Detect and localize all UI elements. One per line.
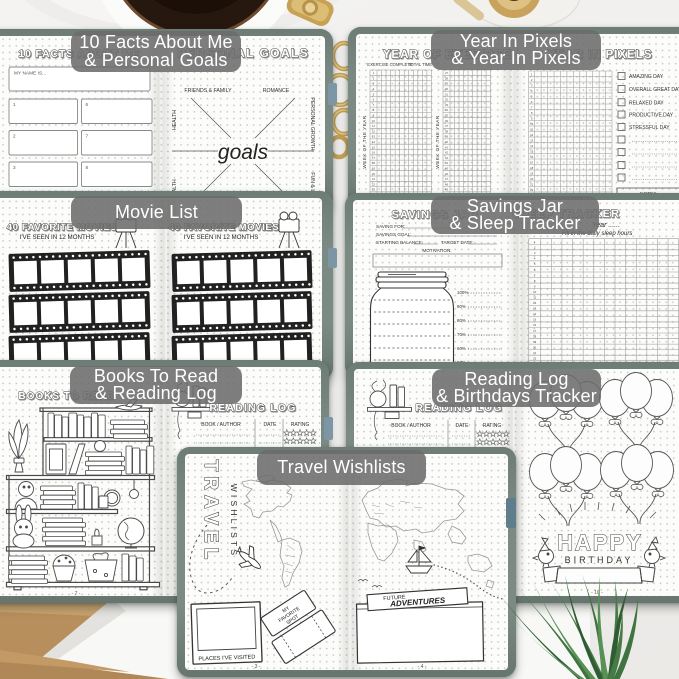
svg-text:38: 38 [445,129,448,133]
svg-text:9: 9 [534,284,536,288]
svg-text:39: 39 [445,135,448,139]
svg-text:43: 43 [445,156,448,160]
svg-text:8: 8 [373,108,375,112]
svg-text:4: 4 [534,257,536,261]
svg-text:2: 2 [531,78,533,82]
svg-text:11: 11 [533,296,536,300]
svg-text:- 4 -: - 4 - [418,664,427,670]
svg-text:8: 8 [534,279,536,283]
svg-text:8: 8 [86,165,89,170]
svg-text:27: 27 [445,71,448,75]
svg-text:12: 12 [533,301,537,305]
svg-text:15: 15 [372,145,375,149]
svg-text:15: 15 [530,149,533,153]
svg-text:33: 33 [445,103,448,107]
svg-text:HEALTH: HEALTH [172,110,178,130]
svg-text:20: 20 [533,345,537,349]
svg-text:20: 20 [372,172,375,176]
svg-text:I'VE SEEN IN 12 MONTHS: I'VE SEEN IN 12 MONTHS [20,234,95,241]
svg-text:21: 21 [533,351,537,355]
svg-text:HAPPY: HAPPY [557,530,643,555]
svg-text:60%: 60% [457,346,466,351]
svg-text:PRODUCTIVE DAY: PRODUCTIVE DAY [629,113,674,119]
svg-text:22: 22 [533,357,537,361]
svg-text:70%: 70% [457,332,466,337]
svg-text:15: 15 [533,318,537,322]
svg-text:BIRTHDAY: BIRTHDAY [565,555,634,565]
svg-text:SAVINGS GOAL:: SAVINGS GOAL: [376,232,411,237]
svg-text:34: 34 [445,108,448,112]
svg-text:5: 5 [534,262,536,266]
svg-text:17: 17 [530,160,533,164]
svg-text:RATING: RATING [483,423,502,429]
svg-text:3: 3 [531,83,533,87]
svg-text:41: 41 [445,145,448,149]
svg-text:32: 32 [445,98,448,102]
svg-text:FRIENDS & FAMILY: FRIENDS & FAMILY [184,88,232,94]
svg-text:28: 28 [445,76,448,80]
svg-text:40: 40 [445,140,448,144]
svg-text:48: 48 [445,182,448,186]
svg-text:DATE: DATE [264,422,278,428]
svg-text:14: 14 [530,144,533,148]
svg-text:MOTIVATION:: MOTIVATION: [422,248,451,253]
svg-text:1: 1 [531,72,533,76]
svg-text:3: 3 [13,165,16,170]
svg-text:18: 18 [530,166,533,170]
svg-text:DATE: DATE [456,423,470,429]
svg-text:13: 13 [372,135,375,139]
svg-text:10: 10 [372,119,375,123]
svg-text:21: 21 [530,182,533,186]
svg-text:21: 21 [372,177,375,181]
svg-text:17: 17 [533,329,537,333]
svg-text:- 3 -: - 3 - [252,664,261,670]
svg-text:12: 12 [372,129,375,133]
svg-text:9: 9 [373,114,375,118]
svg-text:19: 19 [533,340,537,344]
svg-text:42: 42 [445,151,448,155]
svg-text:1: 1 [373,71,375,75]
svg-text:19: 19 [372,167,375,171]
svg-text:45: 45 [445,167,448,171]
svg-text:16: 16 [533,323,537,327]
svg-text:7: 7 [534,273,536,277]
svg-text:7: 7 [86,134,89,139]
svg-text:goals: goals [218,141,269,164]
svg-text:BOOK / AUTHOR: BOOK / AUTHOR [391,423,431,429]
svg-text:WISHLISTS: WISHLISTS [229,484,239,559]
svg-text:- 7 -: - 7 - [72,591,81,597]
svg-text:37: 37 [445,124,448,128]
svg-text:I'VE SEEN IN 12 MONTHS: I'VE SEEN IN 12 MONTHS [184,234,259,241]
svg-text:7: 7 [531,105,533,109]
svg-text:35: 35 [445,114,448,118]
svg-text:10: 10 [530,122,533,126]
svg-text:AMAZING DAY: AMAZING DAY [629,74,664,80]
svg-text:4: 4 [373,87,375,91]
svg-text:6: 6 [86,102,89,107]
svg-text:18: 18 [372,161,375,165]
svg-text:TRAVEL: TRAVEL [200,460,221,565]
svg-text:30: 30 [445,87,448,91]
svg-text:44: 44 [445,161,448,165]
svg-text:RATING: RATING [291,422,310,428]
svg-text:OVERALL GREAT DAY: OVERALL GREAT DAY [629,87,679,93]
svg-text:3: 3 [373,82,375,86]
svg-text:TOTAL TIME: TOTAL TIME [408,62,432,67]
svg-text:20: 20 [530,177,533,181]
svg-text:7: 7 [373,103,375,107]
svg-text:BOOK / AUTHOR: BOOK / AUTHOR [201,422,241,428]
svg-text:22: 22 [372,182,375,186]
svg-text:6: 6 [534,268,536,272]
svg-text:18: 18 [533,334,537,338]
svg-text:10: 10 [533,290,537,294]
svg-text:RELAXED DAY: RELAXED DAY [629,100,664,106]
svg-text:90%: 90% [457,304,466,309]
svg-text:STRESSFUL DAY: STRESSFUL DAY [629,125,670,131]
svg-text:80%: 80% [457,318,466,323]
svg-text:11: 11 [372,124,375,128]
svg-text:WEEK OF THE YEAR: WEEK OF THE YEAR [362,115,367,168]
svg-text:PERSONAL GROWTH: PERSONAL GROWTH [309,97,315,150]
svg-text:29: 29 [445,82,448,86]
svg-text:31: 31 [445,92,448,96]
svg-text:3: 3 [534,251,536,255]
svg-text:36: 36 [445,119,448,123]
svg-text:ROMANCE: ROMANCE [263,88,290,94]
svg-text:6: 6 [373,98,375,102]
svg-text:2: 2 [373,76,375,80]
svg-text:1: 1 [534,240,536,244]
svg-text:14: 14 [533,312,537,316]
svg-text:16: 16 [372,151,375,155]
svg-text:12: 12 [530,133,533,137]
svg-text:46: 46 [445,172,448,176]
svg-text:8: 8 [531,111,533,115]
svg-text:9: 9 [531,116,533,120]
svg-text:14: 14 [372,140,375,144]
svg-text:17: 17 [372,156,375,160]
svg-text:11: 11 [530,127,533,131]
svg-text:22: 22 [530,188,533,192]
svg-text:EXERCISE COMPLETE: EXERCISE COMPLETE [367,62,413,67]
svg-text:SAVING FOR:: SAVING FOR: [376,224,405,229]
svg-text:13: 13 [530,138,533,142]
svg-text:100%: 100% [457,290,468,295]
svg-text:WEEK OF THE YEAR: WEEK OF THE YEAR [435,115,440,168]
svg-text:1: 1 [13,102,16,107]
svg-text:19: 19 [530,171,533,175]
svg-text:49: 49 [445,188,448,192]
svg-text:47: 47 [445,177,448,181]
svg-text:16: 16 [530,155,533,159]
svg-text:4: 4 [531,89,533,93]
svg-text:5: 5 [531,94,533,98]
svg-text:MY NAME IS...: MY NAME IS... [14,71,46,77]
svg-text:6: 6 [531,100,533,104]
svg-text:13: 13 [533,307,537,311]
svg-text:2: 2 [13,134,16,139]
svg-text:2: 2 [534,246,536,250]
svg-text:23: 23 [372,188,375,192]
svg-text:5: 5 [373,92,375,96]
